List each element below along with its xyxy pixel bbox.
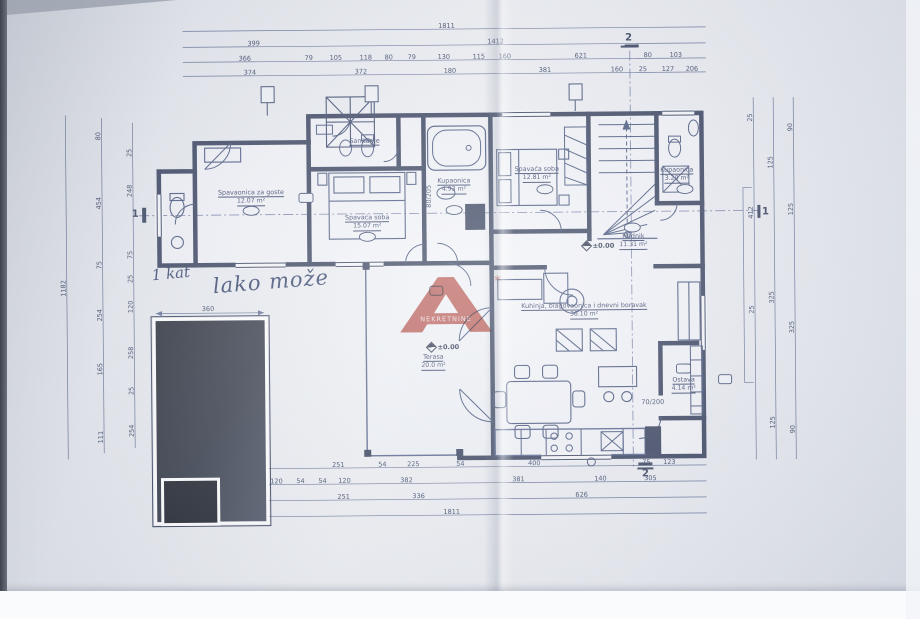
dimension-label: 305 bbox=[644, 475, 656, 482]
dimension-label: 130 bbox=[438, 54, 450, 61]
dimension-label: 160 bbox=[499, 53, 511, 60]
dimension-label: 412 bbox=[748, 206, 755, 218]
dimension-label: 75 bbox=[127, 251, 134, 259]
dimension-label: 1811 bbox=[438, 23, 455, 30]
dimension-label: 165 bbox=[97, 363, 104, 375]
dimension-label: 79 bbox=[408, 54, 416, 61]
dimension-label: 1412 bbox=[487, 38, 504, 45]
dimension-label: 140 bbox=[594, 475, 606, 482]
dimension-label: 206 bbox=[686, 66, 698, 73]
dimension-label: 54 bbox=[296, 478, 304, 485]
plan-sheet: NEKRETNINE * Spavaonica za goste 12.07 m… bbox=[0, 0, 920, 619]
dimension-label: 120 bbox=[338, 478, 350, 485]
dimension-label: 372 bbox=[355, 69, 367, 76]
dimension-label: 25 bbox=[126, 149, 133, 157]
dimension-label: 90 bbox=[790, 425, 797, 433]
dimension-label: 626 bbox=[575, 492, 587, 499]
dimension-label: 399 bbox=[247, 40, 259, 47]
dimension-label: 120 bbox=[128, 301, 135, 313]
dimension-label: 54 bbox=[378, 461, 386, 468]
dimension-label: 90 bbox=[787, 123, 794, 131]
dimension-label: 254 bbox=[129, 425, 136, 437]
dimension-label: 125 bbox=[770, 416, 777, 428]
dimension-label: 70/200 bbox=[641, 399, 664, 406]
dimension-label: 25 bbox=[747, 113, 754, 121]
scan-edge-bottom bbox=[0, 591, 920, 619]
dimension-label: 105 bbox=[330, 55, 342, 62]
dimension-label: 79 bbox=[305, 55, 313, 62]
dimension-label: 374 bbox=[244, 70, 256, 77]
dimension-label: 254 bbox=[97, 309, 104, 321]
dimension-label: 248 bbox=[127, 185, 134, 197]
dimension-label: 80 bbox=[95, 132, 102, 140]
dimension-label: 125 bbox=[767, 156, 774, 168]
dimension-label: 80 bbox=[644, 52, 652, 59]
dimension-label: 251 bbox=[337, 494, 349, 501]
dimension-label: 115 bbox=[473, 54, 485, 61]
dimension-label: 251 bbox=[332, 462, 344, 469]
dimension-label: 54 bbox=[456, 461, 464, 468]
dimension-label: 125 bbox=[788, 203, 795, 215]
dimension-label: 1811 bbox=[443, 509, 460, 516]
dimension-label: 360 bbox=[202, 306, 214, 313]
dimension-label: 336 bbox=[412, 493, 424, 500]
label-layer: Spavaonica za goste 12.07 m² Spavaća sob… bbox=[0, 0, 920, 619]
dimension-label: 366 bbox=[239, 56, 251, 63]
scan-edge-right bbox=[906, 0, 920, 619]
dimension-label: 75 bbox=[642, 459, 650, 466]
dimension-label: 381 bbox=[539, 67, 551, 74]
dimension-label: 621 bbox=[575, 53, 587, 60]
dimension-label: 25 bbox=[127, 275, 134, 283]
dimension-label: 127 bbox=[662, 66, 674, 73]
dimension-label: 180 bbox=[444, 68, 456, 75]
dimension-label: 54 bbox=[318, 478, 326, 485]
dimension-label: 123 bbox=[663, 459, 675, 466]
dimension-label: 25 bbox=[639, 66, 647, 73]
dimension-label: 120 bbox=[270, 478, 282, 485]
dimension-label: 1182 bbox=[60, 280, 67, 297]
dimension-label: 80/205 bbox=[426, 185, 433, 208]
dimension-label: 103 bbox=[670, 52, 682, 59]
dimension-label: 80 bbox=[385, 54, 393, 61]
dimension-label: 75 bbox=[96, 261, 103, 269]
dimension-label: 111 bbox=[98, 431, 105, 443]
floor-plan-scan: NEKRETNINE * Spavaonica za goste 12.07 m… bbox=[0, 0, 920, 619]
dimension-label: 258 bbox=[128, 347, 135, 359]
dimension-label: 381 bbox=[512, 476, 524, 483]
dimension-label: 325 bbox=[769, 291, 776, 303]
scan-edge-left bbox=[0, 0, 7, 619]
dimension-label: 160 bbox=[611, 66, 623, 73]
dimension-layer: 1811399141236679105118807913011516062180… bbox=[0, 0, 920, 619]
dimension-label: 25 bbox=[128, 387, 135, 395]
dimension-label: 454 bbox=[96, 197, 103, 209]
dimension-label: 225 bbox=[407, 461, 419, 468]
dimension-label: 325 bbox=[789, 321, 796, 333]
dimension-label: 25 bbox=[749, 305, 756, 313]
dimension-label: 400 bbox=[528, 460, 540, 467]
dimension-label: 382 bbox=[400, 477, 412, 484]
dimension-label: 118 bbox=[360, 55, 372, 62]
